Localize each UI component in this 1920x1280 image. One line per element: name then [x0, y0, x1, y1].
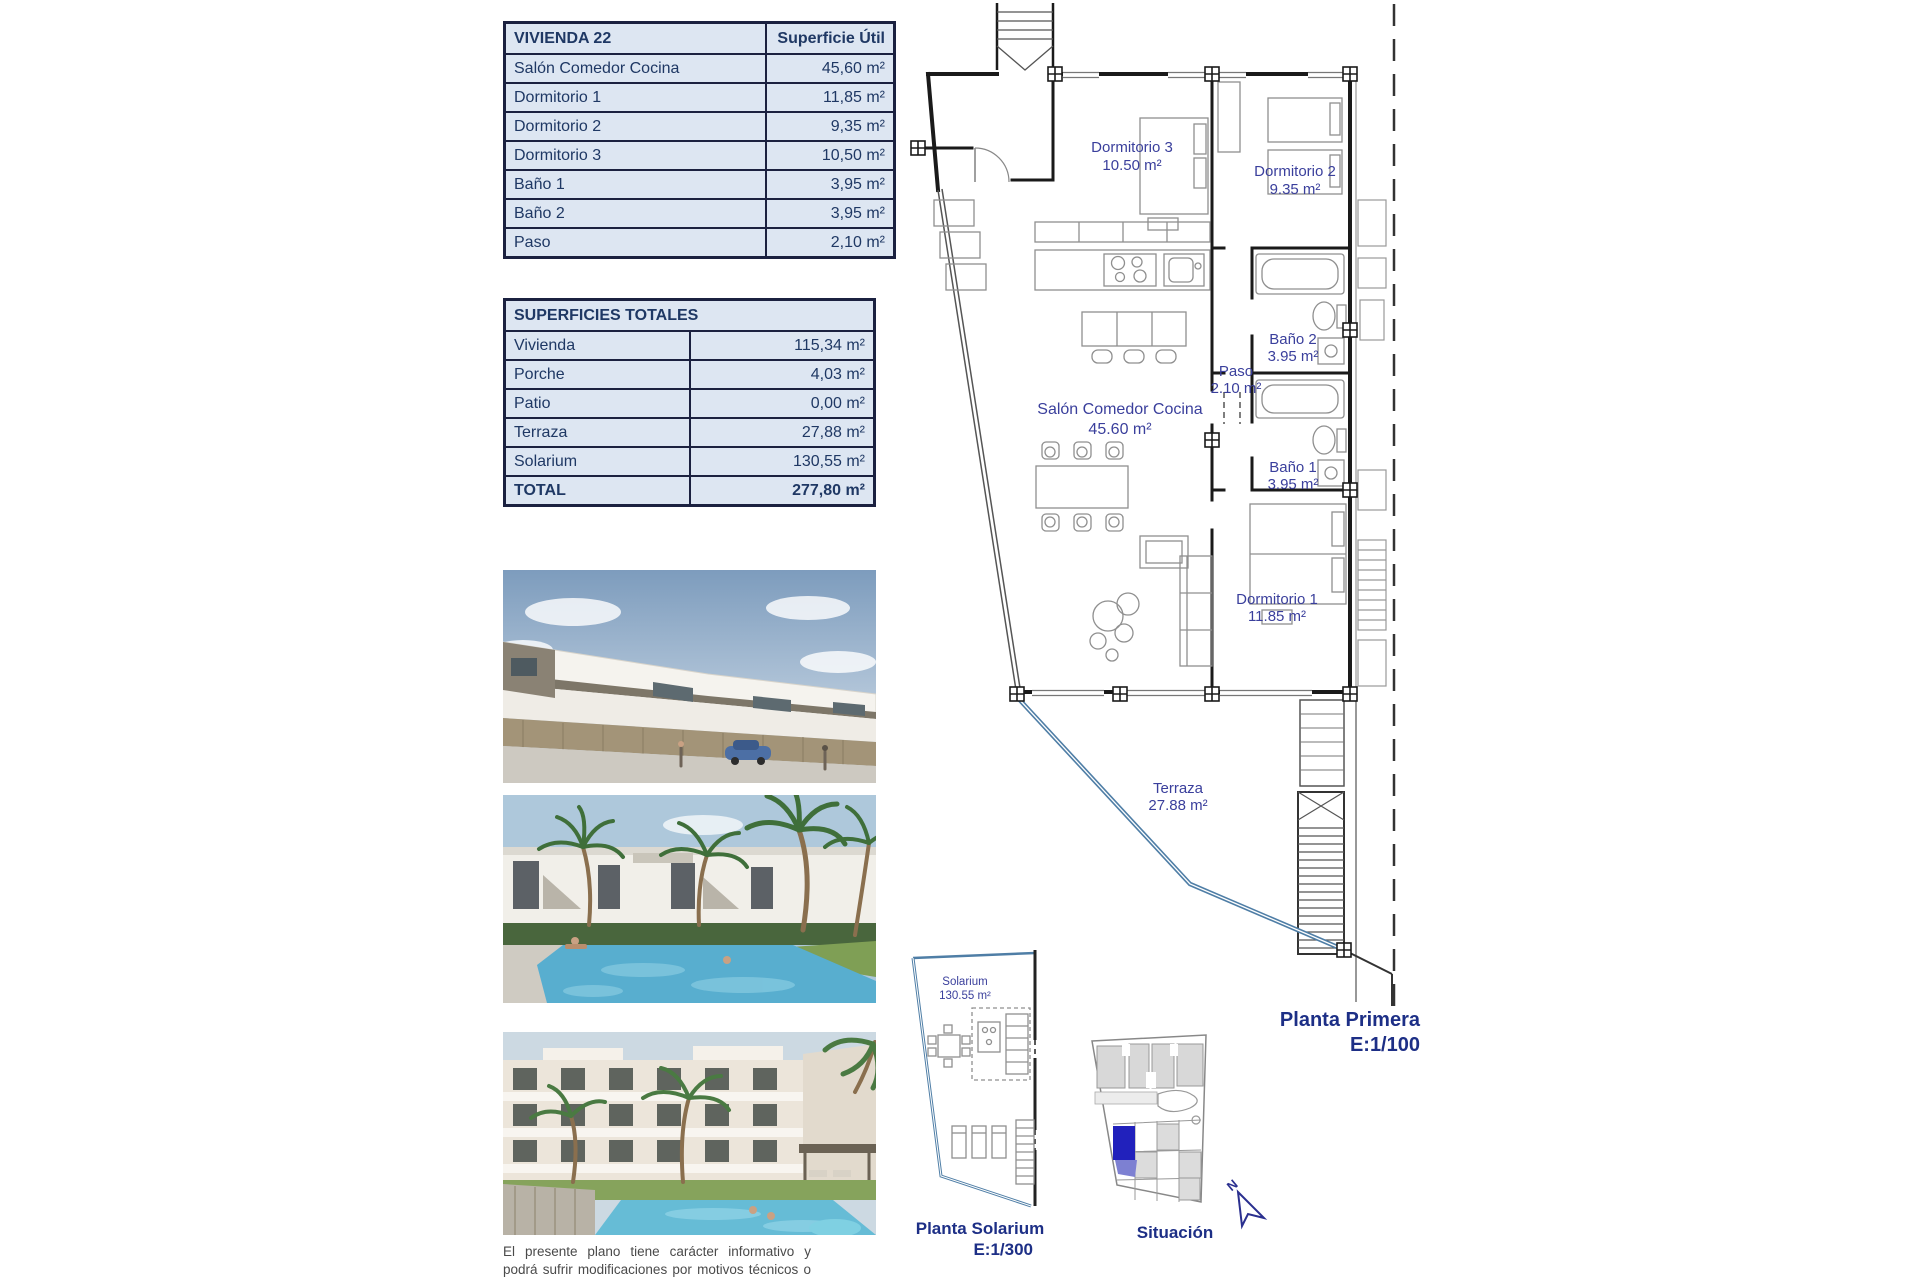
- room-area-terraza: 27.88 m²: [1148, 797, 1207, 814]
- kitchen-counter: [1035, 222, 1210, 290]
- caption-scale: E:1/300: [905, 1239, 1055, 1260]
- kitchen-island: [1082, 312, 1186, 363]
- room-label-bath2: Baño 2: [1269, 331, 1317, 348]
- north-compass: N: [1222, 1176, 1282, 1242]
- table-row: Porche 4,03 m²: [505, 360, 875, 389]
- unit-surface-table: VIVIENDA 22 Superficie Útil Salón Comedo…: [503, 21, 896, 259]
- entrance-stair: [997, 3, 1053, 70]
- cloud: [663, 815, 743, 835]
- row-value: 2,10 m²: [766, 228, 895, 258]
- table-row: Paso 2,10 m²: [505, 228, 895, 258]
- row-label: Baño 1: [505, 170, 767, 199]
- row-label: Paso: [505, 228, 767, 258]
- room-area-bath1: 3.95 m²: [1268, 476, 1319, 493]
- hedge: [503, 923, 876, 945]
- table-row: Dormitorio 1 11,85 m²: [505, 83, 895, 112]
- table-row: Solarium 130,55 m²: [505, 447, 875, 476]
- row-value: 3,95 m²: [766, 170, 895, 199]
- table-total-row: TOTAL 277,80 m²: [505, 476, 875, 506]
- solarium-area: 130.55 m²: [939, 990, 991, 1002]
- disclaimer-text: El presente plano tiene carácter informa…: [503, 1243, 811, 1280]
- unit-table-title: VIVIENDA 22: [505, 23, 767, 55]
- table-row: Dormitorio 2 9,35 m²: [505, 112, 895, 141]
- neighbour-strip: [1356, 74, 1386, 692]
- dining-table: [1036, 442, 1128, 531]
- row-value: 3,95 m²: [766, 199, 895, 228]
- dorm3-bed: [1140, 118, 1208, 230]
- row-value: 4,03 m²: [690, 360, 875, 389]
- situacion-plan: [1080, 1030, 1240, 1215]
- room-label-salon: Salón Comedor Cocina: [1037, 401, 1203, 418]
- row-value: 115,34 m²: [690, 331, 875, 360]
- table-row: Baño 1 3,95 m²: [505, 170, 895, 199]
- lounge-furniture: [1090, 536, 1212, 666]
- room-label-dorm2: Dormitorio 2: [1254, 163, 1336, 180]
- solarium-plan: Solarium 130.55 m²: [905, 945, 1055, 1215]
- room-area-dorm2: 9.35 m²: [1270, 181, 1321, 198]
- room-area-bath2: 3.95 m²: [1268, 348, 1319, 365]
- render-photo-pool: [503, 795, 876, 1003]
- row-label: Baño 2: [505, 199, 767, 228]
- table-row: Patio 0,00 m²: [505, 389, 875, 418]
- render-photo-garden: [503, 1032, 876, 1235]
- table-row: Salón Comedor Cocina 45,60 m²: [505, 54, 895, 83]
- row-label: Solarium: [505, 447, 690, 476]
- row-value: 130,55 m²: [690, 447, 875, 476]
- row-label: Dormitorio 2: [505, 112, 767, 141]
- planta-solarium-caption: Planta Solarium E:1/300: [905, 1218, 1055, 1261]
- row-label: Terraza: [505, 418, 690, 447]
- person-head: [822, 745, 828, 751]
- render-photo-street: [503, 570, 876, 783]
- unit-table-col-header: Superficie Útil: [766, 23, 895, 55]
- room-area-dorm1: 11.85 m²: [1248, 608, 1306, 625]
- table-row: Baño 2 3,95 m²: [505, 199, 895, 228]
- floor-plan-planta-primera: Dormitorio 3 10.50 m² Dormitorio 2 9.35 …: [905, 0, 1420, 1055]
- room-labels: Dormitorio 3 10.50 m² Dormitorio 2 9.35 …: [1037, 139, 1336, 814]
- table-row: Vivienda 115,34 m²: [505, 331, 875, 360]
- plan-sheet: VIVIENDA 22 Superficie Útil Salón Comedo…: [0, 0, 1920, 1280]
- row-value: 27,88 m²: [690, 418, 875, 447]
- row-label: Vivienda: [505, 331, 690, 360]
- room-label-terraza: Terraza: [1153, 780, 1204, 797]
- entry-door: [975, 148, 1009, 182]
- caption-title: Planta Solarium: [905, 1218, 1055, 1239]
- row-value: 11,85 m²: [766, 83, 895, 112]
- row-value: 10,50 m²: [766, 141, 895, 170]
- total-label: TOTAL: [505, 476, 690, 506]
- person-head: [678, 741, 684, 747]
- room-label-dorm1: Dormitorio 1: [1236, 591, 1318, 608]
- row-value: 0,00 m²: [690, 389, 875, 418]
- room-label-dorm3: Dormitorio 3: [1091, 139, 1173, 156]
- table-header-row: VIVIENDA 22 Superficie Útil: [505, 23, 895, 55]
- slat-fence: [503, 1184, 595, 1235]
- row-label: Porche: [505, 360, 690, 389]
- solarium-label: Solarium: [942, 976, 987, 988]
- terrace-boundary: [1017, 697, 1342, 949]
- room-label-paso: Paso: [1219, 363, 1253, 380]
- terrace-stair: [1298, 692, 1392, 1006]
- table-header-row: SUPERFICIES TOTALES: [505, 300, 875, 332]
- row-label: Patio: [505, 389, 690, 418]
- row-value: 45,60 m²: [766, 54, 895, 83]
- room-label-bath1: Baño 1: [1269, 459, 1317, 476]
- situacion-caption: Situación: [1110, 1222, 1240, 1243]
- row-label: Dormitorio 1: [505, 83, 767, 112]
- solarium-furniture: [928, 1008, 1034, 1184]
- buildings: [503, 847, 876, 925]
- table-row: Terraza 27,88 m²: [505, 418, 875, 447]
- room-area-salon: 45.60 m²: [1088, 421, 1152, 438]
- totals-table: SUPERFICIES TOTALES Vivienda 115,34 m² P…: [503, 298, 876, 507]
- row-label: Dormitorio 3: [505, 141, 767, 170]
- room-area-paso: 2.10 m²: [1211, 380, 1262, 397]
- room-area-dorm3: 10.50 m²: [1102, 157, 1161, 174]
- row-value: 9,35 m²: [766, 112, 895, 141]
- row-label: Salón Comedor Cocina: [505, 54, 767, 83]
- table-row: Dormitorio 3 10,50 m²: [505, 141, 895, 170]
- total-value: 277,80 m²: [690, 476, 875, 506]
- compass-arrow-icon: [1238, 1192, 1264, 1226]
- totals-table-title: SUPERFICIES TOTALES: [505, 300, 875, 332]
